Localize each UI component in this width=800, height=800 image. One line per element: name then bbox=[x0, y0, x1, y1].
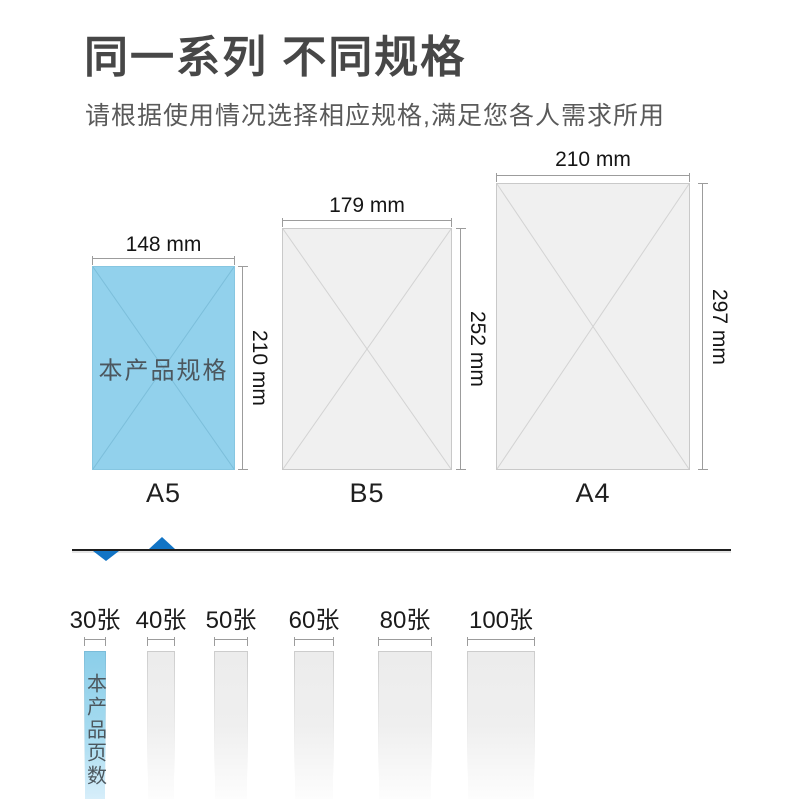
a5-height-dimension-line bbox=[242, 266, 243, 470]
page-title: 同一系列 不同规格 bbox=[84, 30, 466, 85]
page-count-label: 40张 bbox=[136, 600, 187, 635]
a4-paper-rect bbox=[496, 183, 690, 470]
width-dimension-line bbox=[147, 639, 175, 640]
page-count-bar bbox=[214, 651, 248, 800]
diagonal-cross-icon bbox=[497, 184, 689, 469]
page-count-bar bbox=[294, 651, 334, 800]
page-count-column-40: 40张 bbox=[147, 600, 175, 800]
page-count-bar bbox=[378, 651, 432, 800]
triangle-up-icon bbox=[149, 537, 175, 549]
page-subtitle: 请根据使用情况选择相应规格,满足您各人需求所用 bbox=[85, 96, 665, 132]
product-spec-infographic: 同一系列 不同规格 请根据使用情况选择相应规格,满足您各人需求所用 148 mm… bbox=[0, 0, 800, 800]
a5-height-value: 210 mm bbox=[247, 266, 271, 470]
width-dimension-line bbox=[294, 639, 334, 640]
width-dimension-line bbox=[214, 639, 248, 640]
b5-paper-rect bbox=[282, 228, 452, 470]
a4-width-value: 210 mm bbox=[496, 148, 690, 172]
a5-size-label: A5 bbox=[92, 478, 235, 509]
a5-paper-rect: 本产品规格 bbox=[92, 266, 235, 470]
page-count-column-100: 100张 bbox=[467, 600, 535, 800]
page-count-label: 100张 bbox=[469, 600, 533, 635]
a4-height-dimension-line bbox=[702, 183, 703, 470]
product-pages-tag: 本产品页数 bbox=[81, 673, 110, 788]
page-count-bar-highlighted: 本产品页数 bbox=[84, 651, 106, 800]
section-divider bbox=[72, 549, 731, 551]
a5-width-value: 148 mm bbox=[92, 233, 235, 257]
page-count-column-50: 50张 bbox=[214, 600, 248, 800]
a5-width-dimension-line bbox=[92, 258, 235, 259]
width-dimension-line bbox=[467, 639, 535, 640]
b5-height-value: 252 mm bbox=[465, 228, 489, 470]
page-count-bar bbox=[467, 651, 535, 800]
b5-size-label: B5 bbox=[282, 478, 452, 509]
diagonal-cross-icon bbox=[283, 229, 451, 469]
width-dimension-line bbox=[84, 639, 106, 640]
b5-width-value: 179 mm bbox=[282, 194, 452, 218]
width-dimension-line bbox=[378, 639, 432, 640]
a5-product-spec-tag: 本产品规格 bbox=[93, 351, 234, 386]
page-count-label: 30张 bbox=[70, 600, 121, 635]
page-count-column-60: 60张 bbox=[294, 600, 334, 800]
triangle-down-icon bbox=[93, 551, 119, 561]
a4-height-value: 297 mm bbox=[707, 183, 731, 470]
page-count-column-80: 80张 bbox=[378, 600, 432, 800]
page-count-label: 60张 bbox=[289, 600, 340, 635]
a4-size-label: A4 bbox=[496, 478, 690, 509]
page-count-label: 80张 bbox=[380, 600, 431, 635]
page-count-bar bbox=[147, 651, 175, 800]
b5-height-dimension-line bbox=[460, 228, 461, 470]
page-count-column-30: 30张 本产品页数 bbox=[84, 600, 106, 800]
a4-width-dimension-line bbox=[496, 175, 690, 176]
page-count-label: 50张 bbox=[206, 600, 257, 635]
b5-width-dimension-line bbox=[282, 220, 452, 221]
